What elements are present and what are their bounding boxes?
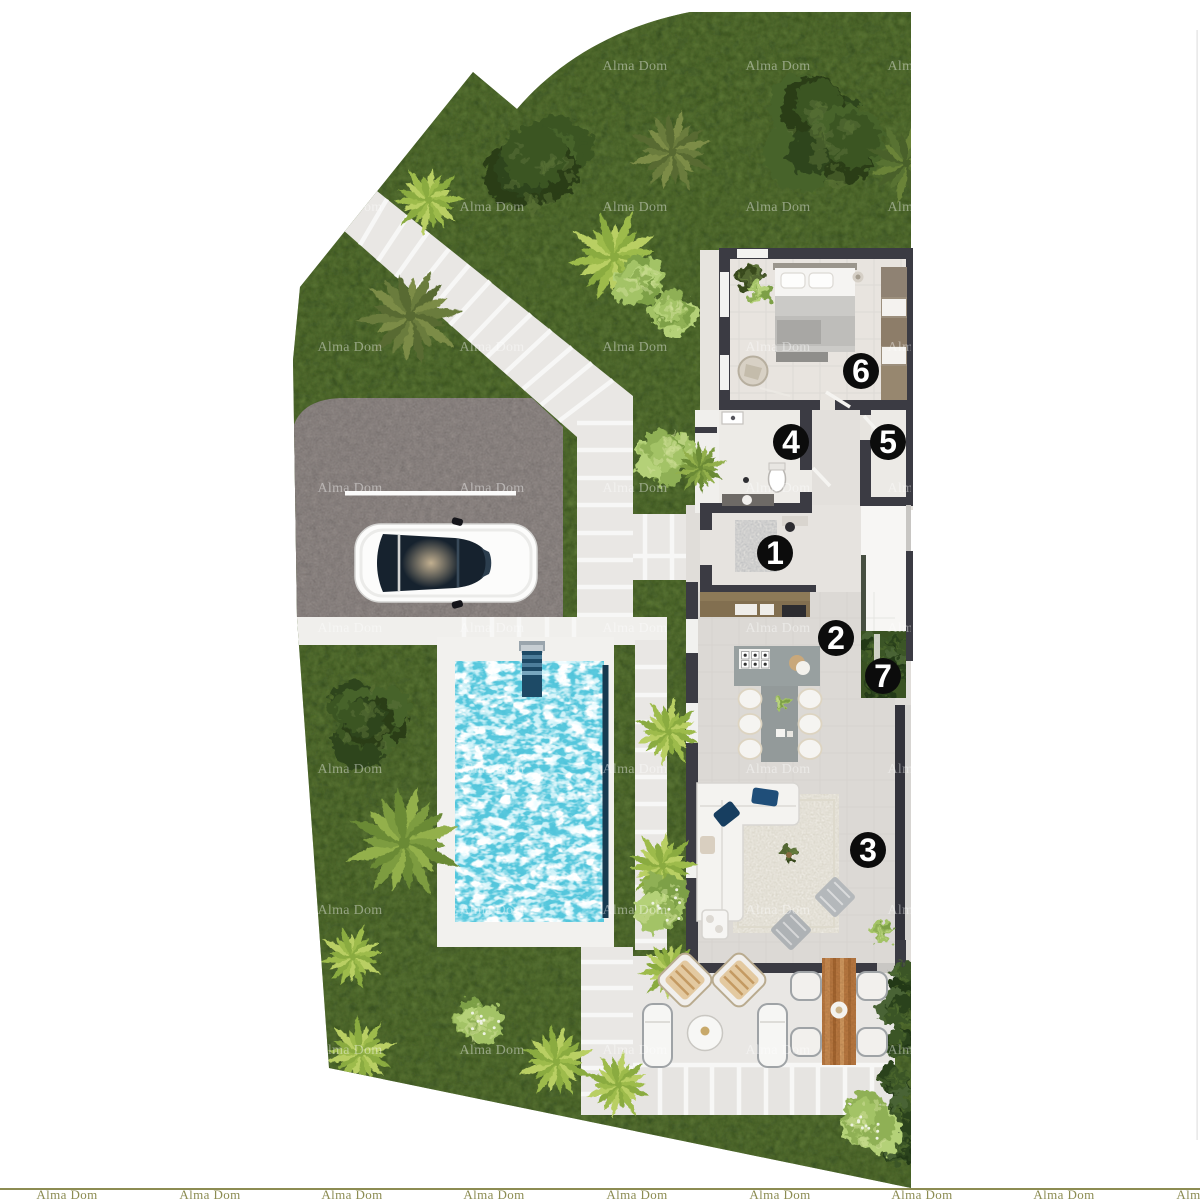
svg-text:Alma Dom: Alma Dom xyxy=(745,762,810,777)
svg-text:Alma Dom: Alma Dom xyxy=(459,340,524,355)
svg-text:Alma Dom: Alma Dom xyxy=(745,200,810,215)
svg-text:5: 5 xyxy=(879,424,897,460)
svg-text:6: 6 xyxy=(852,353,870,389)
svg-text:Alma Dom: Alma Dom xyxy=(745,481,810,496)
svg-text:Alma Dom: Alma Dom xyxy=(179,1187,240,1200)
svg-text:Alma Dom: Alma Dom xyxy=(317,762,382,777)
svg-text:Alma Dom: Alma Dom xyxy=(459,903,524,918)
svg-text:Alma Dom: Alma Dom xyxy=(745,621,810,636)
svg-text:Alma Dom: Alma Dom xyxy=(602,340,667,355)
svg-text:Alma Dom: Alma Dom xyxy=(745,59,810,74)
svg-text:Alma Dom: Alma Dom xyxy=(745,1043,810,1058)
svg-text:Alma Dom: Alma Dom xyxy=(1176,1187,1200,1200)
svg-text:Alma Dom: Alma Dom xyxy=(459,200,524,215)
svg-text:Alma Dom: Alma Dom xyxy=(602,762,667,777)
svg-text:Alma Dom: Alma Dom xyxy=(317,340,382,355)
svg-text:Alma Dom: Alma Dom xyxy=(317,621,382,636)
svg-text:Alma Dom: Alma Dom xyxy=(459,762,524,777)
svg-text:Alma Dom: Alma Dom xyxy=(317,481,382,496)
svg-text:Alma Dom: Alma Dom xyxy=(745,340,810,355)
svg-text:Alma Dom: Alma Dom xyxy=(602,903,667,918)
svg-text:Alma Dom: Alma Dom xyxy=(463,1187,524,1200)
svg-text:Alma Dom: Alma Dom xyxy=(459,481,524,496)
svg-text:Alma Dom: Alma Dom xyxy=(602,59,667,74)
svg-text:Alma Dom: Alma Dom xyxy=(602,481,667,496)
svg-text:Alma Dom: Alma Dom xyxy=(745,903,810,918)
svg-text:Alma Dom: Alma Dom xyxy=(459,1043,524,1058)
svg-text:7: 7 xyxy=(874,658,892,694)
svg-text:Alma Dom: Alma Dom xyxy=(602,200,667,215)
svg-text:Alma Dom: Alma Dom xyxy=(36,1187,97,1200)
svg-text:Alma Dom: Alma Dom xyxy=(317,903,382,918)
svg-text:2: 2 xyxy=(827,620,845,656)
svg-text:Alma Dom: Alma Dom xyxy=(606,1187,667,1200)
svg-text:Alma Dom: Alma Dom xyxy=(459,621,524,636)
svg-text:3: 3 xyxy=(859,832,877,868)
svg-text:Alma Dom: Alma Dom xyxy=(749,1187,810,1200)
svg-text:1: 1 xyxy=(766,535,784,571)
svg-text:Alma Dom: Alma Dom xyxy=(321,1187,382,1200)
svg-text:Alma Dom: Alma Dom xyxy=(602,1043,667,1058)
svg-text:Alma Dom: Alma Dom xyxy=(602,621,667,636)
svg-text:4: 4 xyxy=(782,424,800,460)
svg-text:Alma Dom: Alma Dom xyxy=(891,1187,952,1200)
svg-text:Alma Dom: Alma Dom xyxy=(1033,1187,1094,1200)
